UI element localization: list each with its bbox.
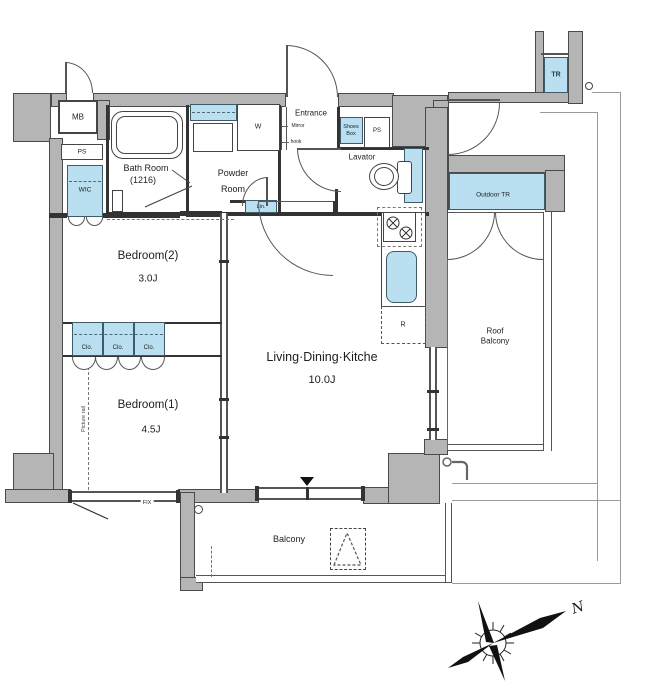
bath-size-label: (1216) bbox=[130, 175, 156, 185]
sliding-door-line bbox=[180, 211, 222, 213]
mirror-leader bbox=[282, 126, 288, 127]
wic-label: WIC bbox=[79, 187, 92, 194]
balcony-rail-right bbox=[445, 503, 452, 582]
entrance-label: Entrance bbox=[295, 109, 327, 118]
wall-segment bbox=[424, 439, 448, 455]
bedroom1-label: Bedroom(1) bbox=[118, 399, 179, 411]
washer-label: W bbox=[255, 124, 262, 131]
shoes-box-label-1: Shoes bbox=[343, 124, 359, 130]
entry-direction-triangle bbox=[300, 477, 314, 486]
bedroom2-size-label: 3.0J bbox=[139, 274, 158, 285]
balcony-window bbox=[257, 487, 363, 500]
wall-segment bbox=[5, 489, 71, 503]
tr-label: TR bbox=[551, 72, 560, 79]
roof-balcony-door-right-arc bbox=[495, 212, 543, 260]
wall-segment bbox=[180, 492, 195, 589]
mb-label: MB bbox=[72, 113, 84, 122]
kitchen-sink bbox=[386, 251, 417, 303]
powder-door-arc bbox=[242, 177, 268, 206]
closet-label-2: Clo. bbox=[113, 345, 124, 351]
shower-stand bbox=[112, 190, 123, 212]
bedroom1-size-label: 4.5J bbox=[142, 425, 161, 436]
entry-step-line bbox=[281, 107, 287, 150]
closet-bifold-arc bbox=[72, 357, 96, 370]
window-center-tick bbox=[306, 487, 309, 500]
partition bbox=[103, 213, 180, 218]
tr-divider bbox=[541, 53, 568, 55]
wall-segment bbox=[448, 92, 583, 103]
boundary-line bbox=[452, 583, 621, 584]
wall-segment bbox=[545, 170, 565, 212]
wall-segment bbox=[568, 31, 583, 104]
compass-rose bbox=[448, 601, 566, 681]
ldk-label: Living·Dining·Kitche bbox=[266, 350, 377, 364]
compass-needle-n bbox=[478, 601, 494, 643]
powder-room-label-2: Room bbox=[221, 184, 245, 194]
boundary-line bbox=[540, 112, 598, 113]
corridor-circle-marker bbox=[585, 82, 593, 90]
wic-door-arc bbox=[68, 217, 85, 226]
wic-door-arc bbox=[86, 217, 103, 226]
toilet-tank bbox=[397, 161, 412, 194]
wall-segment bbox=[13, 93, 51, 142]
wall-segment bbox=[535, 31, 544, 93]
roof-balcony-door-left-arc bbox=[447, 212, 495, 260]
shoes-box-label-2: Box bbox=[346, 131, 355, 137]
evacuation-hatch bbox=[330, 528, 366, 570]
lavatory-door-arc bbox=[297, 148, 341, 192]
closet-label-1: Clo. bbox=[82, 345, 93, 351]
partition bbox=[186, 105, 189, 215]
window-post bbox=[361, 486, 365, 501]
closet-bifold-arc bbox=[141, 357, 165, 370]
hook-label: hook bbox=[291, 139, 302, 145]
bedroom2-label: Bedroom(2) bbox=[118, 250, 179, 262]
ldk-door-arc bbox=[258, 201, 333, 276]
bathtub-inner bbox=[116, 116, 178, 154]
picture-rail-line bbox=[88, 362, 89, 490]
roof-balcony-rail-bottom bbox=[448, 444, 552, 451]
corridor-door-arc bbox=[448, 103, 500, 155]
partition bbox=[49, 213, 67, 218]
window-post bbox=[68, 490, 72, 503]
window-post bbox=[176, 490, 180, 503]
fix-label: FIX bbox=[141, 500, 154, 506]
lavatory-label: Lavator bbox=[349, 153, 376, 162]
ldk-side-window bbox=[429, 347, 437, 440]
partition bbox=[333, 201, 337, 215]
wic-hanger-rail bbox=[69, 181, 101, 182]
boundary-line bbox=[620, 92, 621, 584]
range-hood-outline bbox=[377, 207, 422, 247]
roof-balcony-rail-right bbox=[543, 212, 552, 451]
wall-segment bbox=[49, 138, 63, 492]
boundary-line bbox=[452, 483, 598, 484]
window-tick bbox=[427, 428, 439, 431]
window-tick bbox=[219, 436, 229, 439]
mirror-label: Mirror bbox=[291, 123, 304, 129]
corridor-door-leaf bbox=[448, 99, 500, 101]
ceiling-dashed-line bbox=[107, 219, 234, 220]
roof-balcony-label-2: Balcony bbox=[481, 337, 509, 346]
entrance-door-arc bbox=[286, 45, 338, 97]
vanity-line bbox=[192, 112, 235, 113]
linen-label: Lin. bbox=[257, 204, 266, 210]
balcony-label: Balcony bbox=[273, 534, 305, 544]
fix-window bbox=[70, 491, 178, 502]
window-post bbox=[255, 486, 259, 501]
window-tick bbox=[219, 398, 229, 401]
balcony-circle-marker bbox=[194, 505, 203, 514]
picture-rail-label: Picture rail bbox=[81, 390, 87, 448]
compass-needle-sw bbox=[448, 643, 493, 668]
mb-door-arc bbox=[65, 62, 93, 93]
ldk-size-label: 10.0J bbox=[309, 374, 336, 386]
boundary-line bbox=[452, 500, 621, 501]
wall-segment bbox=[388, 453, 440, 504]
floor-plan: MB PS WIC Bath Room (1216) Powder Room W… bbox=[0, 0, 659, 692]
bath-room-label: Bath Room bbox=[123, 163, 168, 173]
wall-segment bbox=[338, 93, 394, 107]
toilet-seat bbox=[374, 167, 394, 186]
compass-needle-s bbox=[489, 645, 505, 681]
closet-label-3: Clo. bbox=[144, 345, 155, 351]
outdoor-tr-label: Outdoor TR bbox=[476, 192, 510, 199]
balcony-rail-bottom bbox=[196, 575, 452, 583]
ps-right-label: PS bbox=[373, 128, 381, 134]
wall-segment bbox=[363, 487, 390, 504]
compass-north-label: N bbox=[570, 598, 587, 617]
closet-bifold-arc bbox=[118, 357, 141, 370]
refrigerator-label: R bbox=[400, 322, 405, 329]
closet-bifold-arc bbox=[95, 357, 118, 370]
ps-left-label: PS bbox=[78, 149, 87, 156]
wall-segment bbox=[425, 107, 448, 348]
window-tick bbox=[219, 260, 229, 263]
boundary-line bbox=[592, 92, 621, 93]
vanity-cabinet bbox=[193, 123, 233, 152]
wall-segment bbox=[13, 453, 54, 491]
window-swing-line bbox=[73, 503, 108, 519]
partition-bedrooms-ldk bbox=[220, 213, 228, 493]
compass-needle-ne bbox=[493, 611, 566, 643]
roof-balcony-line-left bbox=[447, 258, 448, 450]
closet-hanger-rail bbox=[74, 334, 163, 335]
sliding-door-line bbox=[186, 215, 222, 217]
bath-folding-door-line bbox=[145, 186, 192, 207]
boundary-line bbox=[597, 112, 598, 561]
roof-balcony-label-1: Roof bbox=[487, 327, 504, 336]
balcony-divider-dashed bbox=[211, 546, 212, 577]
powder-room-label-1: Powder bbox=[218, 168, 249, 178]
hook-leader bbox=[282, 142, 289, 143]
partition bbox=[106, 105, 109, 215]
drain-pipe bbox=[443, 458, 467, 480]
window-tick bbox=[427, 390, 439, 393]
